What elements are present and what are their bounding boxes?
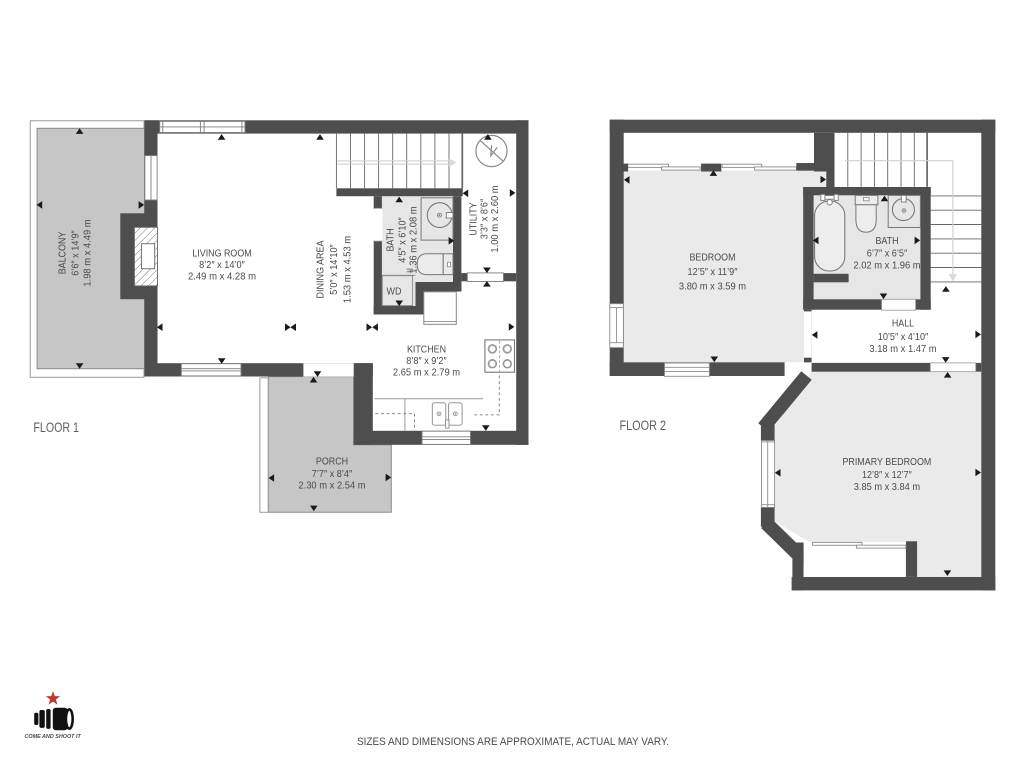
svg-text:12’8″ x 12’7″: 12’8″ x 12’7″ [862,470,912,481]
svg-text:10’5″ x 4’10″: 10’5″ x 4’10″ [878,332,929,343]
svg-text:2.30 m x 2.54 m: 2.30 m x 2.54 m [298,481,365,492]
svg-text:BEDROOM: BEDROOM [690,253,736,264]
svg-text:6’6″ x 14’9″: 6’6″ x 14’9″ [71,230,82,276]
svg-text:8’8″ x 9’2″: 8’8″ x 9’2″ [406,356,447,367]
svg-text:7’7″ x 8’4″: 7’7″ x 8’4″ [312,469,353,480]
svg-text:COME AND SHOOT IT: COME AND SHOOT IT [25,734,82,740]
svg-text:DINING AREA: DINING AREA [316,240,327,298]
svg-text:4’5″ x 6’10″: 4’5″ x 6’10″ [398,217,409,263]
svg-text:8’2″ x 14’0″: 8’2″ x 14’0″ [199,260,245,271]
svg-text:6’7″ x 6’5″: 6’7″ x 6’5″ [867,249,908,260]
svg-text:PORCH: PORCH [316,457,348,468]
svg-text:3.18 m x 1.47 m: 3.18 m x 1.47 m [869,344,936,355]
svg-text:3.80 m x 3.59 m: 3.80 m x 3.59 m [679,281,746,292]
svg-text:2.49 m x 4.28 m: 2.49 m x 4.28 m [188,272,256,283]
svg-text:2.02 m x 1.96 m: 2.02 m x 1.96 m [853,261,920,272]
svg-text:BALCONY: BALCONY [58,232,69,275]
svg-text:FLOOR 2: FLOOR 2 [620,418,667,433]
svg-text:1.98 m x 4.49 m: 1.98 m x 4.49 m [83,219,94,286]
svg-text:HALL: HALL [892,319,915,330]
svg-text:SIZES AND DIMENSIONS ARE APPRO: SIZES AND DIMENSIONS ARE APPROXIMATE, AC… [357,736,669,748]
svg-text:PRIMARY BEDROOM: PRIMARY BEDROOM [842,457,931,468]
svg-text:KITCHEN: KITCHEN [407,345,446,356]
svg-text:BATH: BATH [875,236,898,247]
svg-text:1.36 m x 2.08 m: 1.36 m x 2.08 m [409,206,420,273]
svg-text:12’5″ x 11’9″: 12’5″ x 11’9″ [688,267,738,278]
svg-text:5’0″ x 14’10″: 5’0″ x 14’10″ [329,244,340,295]
svg-text:FLOOR 1: FLOOR 1 [33,420,79,435]
svg-text:1.00 m x 2.60 m: 1.00 m x 2.60 m [490,185,501,252]
svg-text:3.85 m x 3.84 m: 3.85 m x 3.84 m [854,482,920,493]
svg-text:BATH: BATH [386,228,397,251]
svg-text:2.65 m x 2.79 m: 2.65 m x 2.79 m [393,368,460,379]
svg-text:UTILITY: UTILITY [469,202,480,235]
svg-text:LIVING ROOM: LIVING ROOM [192,249,251,260]
svg-text:WD: WD [387,286,402,297]
svg-text:3’3″ x 8’6″: 3’3″ x 8’6″ [480,198,491,239]
svg-text:1.53 m x 4.53 m: 1.53 m x 4.53 m [343,236,354,303]
